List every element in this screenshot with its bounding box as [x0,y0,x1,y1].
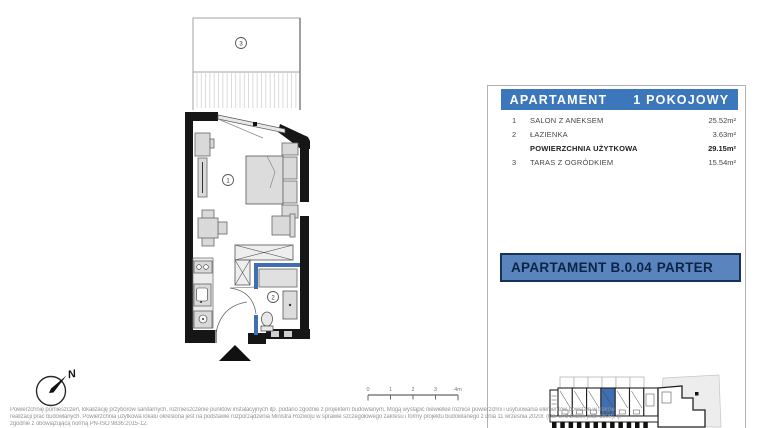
terrace-decking-hatch [197,73,296,108]
unit-type-header-left: APARTAMENT [510,93,608,107]
scale-tick-label: 1 [389,387,392,393]
north-label: N [67,368,78,382]
room-area: 25.52m² [708,116,745,125]
disclaimer-line: Powierzchnię pomieszczeń, lokalizację pr… [10,407,752,414]
room-number: 2 [488,130,530,139]
unit-type-header: APARTAMENT 1 POKOJOWY [501,89,738,110]
room-number: 1 [488,116,530,125]
disclaimer-line: zgodnie z obowiązującą normą PN-ISO 9836… [10,421,752,428]
room-area: 15.54m² [708,158,745,167]
entrance-door-swing [216,302,247,333]
disclaimer-line: realizacji prac budowlanych. Powierzchni… [10,414,752,421]
cabinet [195,133,214,156]
unit-type-header-right: 1 POKOJOWY [633,93,729,107]
scale-tick-label: 4m [454,387,462,393]
wall-niche [271,331,279,337]
terrace-area: 3 [193,18,300,110]
scale-tick-label: 2 [411,387,414,393]
room-area: 29.15m² [708,144,745,153]
scale-tick-label: 3 [434,387,437,393]
bed [246,143,298,218]
unit-banner: APARTAMENT B.0.04 PARTER [500,253,741,282]
legal-disclaimer: Powierzchnię pomieszczeń, lokalizację pr… [10,407,752,428]
shower [259,269,297,287]
bathroom-door-swing [230,288,256,314]
tv-unit [198,158,207,197]
armchair [272,214,295,237]
toilet [261,312,273,331]
room-label: SALON Z ANEKSEM [530,116,708,125]
entrance [216,302,251,361]
apartment-floor-plan: 3 [175,8,325,374]
dining-table [198,210,227,246]
table-row: 1 SALON Z ANEKSEM 25.52m² [488,113,745,127]
room-label: TARAS Z OGRÓDKIEM [530,158,708,167]
entrance-arrow [219,345,251,361]
table-row-total: POWIERZCHNIA UŻYTKOWA 29.15m² [488,141,745,155]
room-label: ŁAZIENKA [530,130,713,139]
unit-floor: PARTER [657,260,713,275]
unit-name: APARTAMENT B.0.04 [511,260,652,275]
furniture [193,133,298,328]
wall-niche [284,331,292,337]
sliding-door [218,115,285,138]
kitchen-counter [193,258,213,328]
washbasin-drain [289,304,291,306]
table-row: 2 ŁAZIENKA 3.63m² [488,127,745,141]
room-area: 3.63m² [713,130,745,139]
room-number: 3 [488,158,530,167]
area-table: 1 SALON Z ANEKSEM 25.52m² 2 ŁAZIENKA 3.6… [488,113,745,169]
scale-bar: 0 1 2 3 4m [360,381,470,405]
table-row: 3 TARAS Z OGRÓDKIEM 15.54m² [488,155,745,169]
scale-tick-label: 0 [366,387,369,393]
room-label: POWIERZCHNIA UŻYTKOWA [530,144,708,153]
